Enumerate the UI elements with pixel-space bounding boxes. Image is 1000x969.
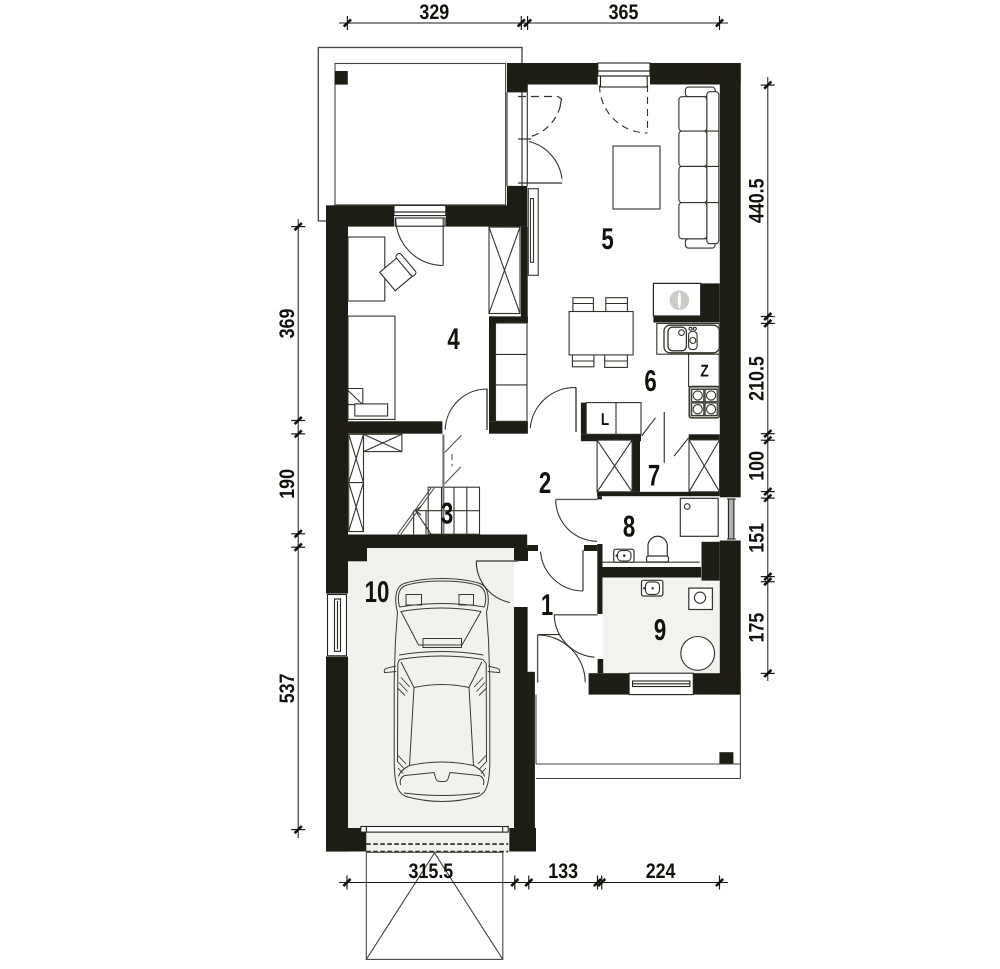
svg-text:329: 329 — [419, 1, 449, 24]
svg-text:1: 1 — [541, 589, 553, 622]
svg-text:315.5: 315.5 — [409, 860, 454, 883]
svg-text:133: 133 — [548, 860, 578, 883]
svg-text:175: 175 — [746, 612, 769, 642]
svg-text:151: 151 — [746, 523, 769, 553]
svg-text:3: 3 — [441, 498, 453, 531]
svg-text:369: 369 — [276, 309, 299, 339]
svg-text:9: 9 — [654, 614, 666, 647]
svg-text:190: 190 — [276, 469, 299, 499]
svg-text:365: 365 — [609, 1, 639, 24]
svg-text:4: 4 — [447, 323, 460, 356]
svg-text:10: 10 — [365, 576, 390, 609]
svg-text:440.5: 440.5 — [746, 178, 769, 223]
svg-text:L: L — [601, 410, 609, 429]
svg-text:6: 6 — [644, 365, 656, 398]
svg-text:7: 7 — [648, 460, 660, 493]
svg-text:100: 100 — [746, 451, 769, 481]
svg-text:2: 2 — [539, 467, 551, 500]
svg-text:5: 5 — [601, 223, 613, 256]
svg-text:537: 537 — [276, 674, 299, 704]
svg-text:224: 224 — [646, 860, 676, 883]
svg-text:Z: Z — [700, 362, 708, 381]
svg-text:210.5: 210.5 — [746, 356, 769, 401]
svg-text:8: 8 — [623, 510, 635, 543]
